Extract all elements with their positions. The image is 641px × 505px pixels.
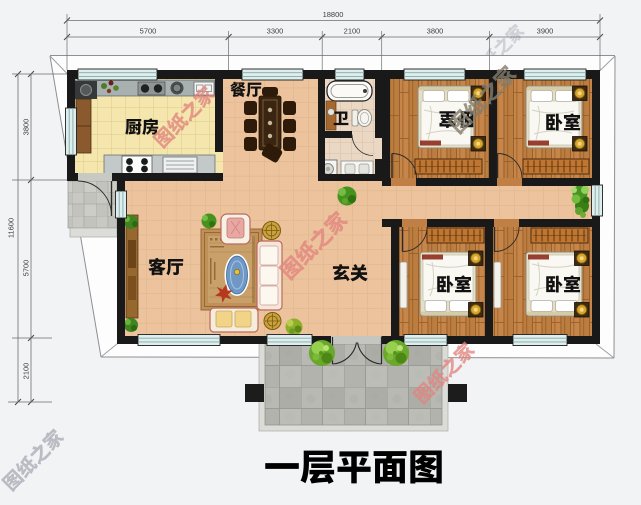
svg-text:5700: 5700 <box>140 27 157 36</box>
svg-text:3900: 3900 <box>537 27 554 36</box>
svg-text:2100: 2100 <box>22 363 31 380</box>
svg-text:5700: 5700 <box>22 260 31 277</box>
svg-text:2100: 2100 <box>344 27 361 36</box>
svg-text:3300: 3300 <box>267 27 284 36</box>
svg-text:3800: 3800 <box>427 27 444 36</box>
svg-text:3800: 3800 <box>22 119 31 136</box>
svg-text:11600: 11600 <box>7 218 16 238</box>
svg-text:18800: 18800 <box>323 10 344 19</box>
